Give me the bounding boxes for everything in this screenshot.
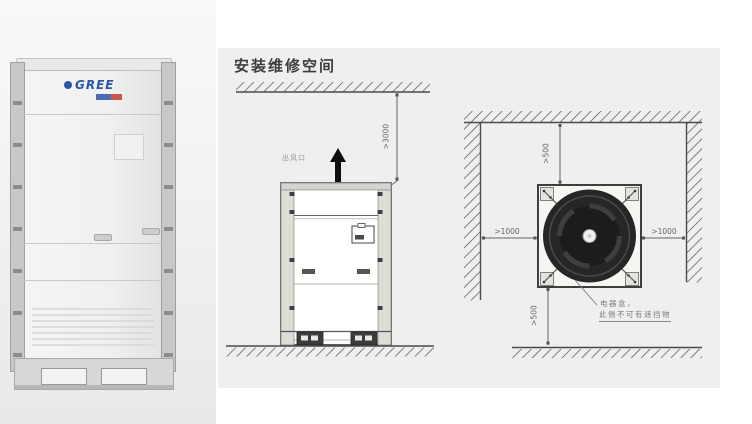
diagram-title: 安装维修空间 bbox=[234, 55, 336, 76]
unit-corner-rail-left bbox=[10, 62, 25, 372]
air-outlet-label: 出风口 bbox=[282, 153, 306, 163]
forklift-slot bbox=[101, 368, 147, 385]
air-outlet-arrow-icon bbox=[330, 148, 346, 182]
right-wall-hatch bbox=[687, 123, 703, 283]
service-hatch bbox=[114, 134, 144, 160]
forklift-slot bbox=[41, 368, 87, 385]
bottom-louvers bbox=[32, 308, 154, 346]
dim-label-top-clearance: >3000 bbox=[382, 115, 391, 159]
base-edge bbox=[15, 385, 173, 389]
dim-top-clearance bbox=[390, 93, 397, 186]
dim-label-rear-clearance: >500 bbox=[542, 132, 551, 176]
installation-clearance-panel: 安装维修空间 出风口 >3000 >500 >1000 >1000 >500 电… bbox=[218, 48, 720, 388]
handle-mark bbox=[302, 269, 315, 274]
nameplate bbox=[352, 224, 374, 244]
ground-hatch bbox=[512, 349, 702, 358]
unit-corner-rail-right bbox=[161, 62, 176, 372]
fan-icon bbox=[543, 190, 636, 283]
panel-seam bbox=[17, 114, 169, 115]
electric-box-note-line2: 此侧不可有遮挡物 bbox=[599, 309, 671, 322]
unit-base-frame bbox=[14, 358, 174, 390]
brand-sub-badge bbox=[96, 94, 122, 100]
unit-front-elevation bbox=[281, 183, 391, 345]
ceiling-hatch bbox=[236, 82, 430, 92]
electric-box-note-line1: 电器盒， bbox=[600, 298, 636, 309]
dim-label-front-clearance: >500 bbox=[530, 294, 539, 338]
ground-hatch bbox=[226, 348, 434, 357]
catalog-figure: GREE bbox=[0, 0, 752, 424]
panel-handle bbox=[94, 234, 112, 241]
panel-seam bbox=[17, 243, 169, 244]
brand-logo: GREE bbox=[64, 78, 114, 92]
front-view-drawing bbox=[226, 82, 434, 357]
unit-top-view bbox=[538, 185, 641, 287]
panel-seam bbox=[17, 280, 169, 281]
handle-mark bbox=[357, 269, 370, 274]
dim-label-right-clearance: >1000 bbox=[642, 227, 686, 236]
outdoor-unit-photo: GREE bbox=[10, 58, 176, 390]
left-wall-hatch bbox=[464, 123, 480, 301]
panel-handle bbox=[142, 228, 160, 235]
brand-logo-icon bbox=[64, 81, 72, 89]
rear-wall-hatch bbox=[464, 111, 702, 122]
brand-logo-text: GREE bbox=[75, 78, 114, 92]
clearance-drawing bbox=[218, 48, 720, 388]
dim-label-left-clearance: >1000 bbox=[485, 227, 529, 236]
